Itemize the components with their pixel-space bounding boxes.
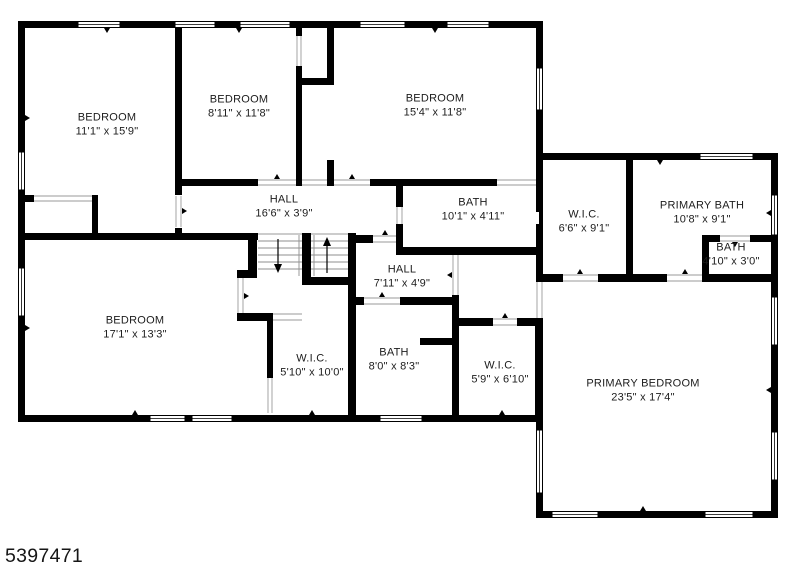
room-label-primary-bath: PRIMARY BATH 10'8" x 9'1" — [660, 200, 744, 227]
room-name: PRIMARY BATH — [660, 200, 744, 214]
room-dims: 16'6" x 3'9" — [255, 207, 312, 221]
room-name: BATH — [442, 197, 505, 211]
room-label-bath-hall: BATH 10'1" x 4'11" — [442, 197, 505, 224]
room-name: BEDROOM — [404, 93, 467, 107]
room-label-bedroom-4: BEDROOM 17'1" x 13'3" — [103, 315, 167, 342]
room-name: BEDROOM — [208, 94, 270, 108]
room-name: W.I.C. — [280, 353, 344, 367]
room-label-bath-lower: BATH 8'0" x 8'3" — [369, 347, 420, 374]
room-label-bedroom-2: BEDROOM 8'11" x 11'8" — [208, 94, 270, 121]
room-label-bath-small: BATH 4'10" x 3'0" — [702, 242, 759, 269]
room-dims: 8'0" x 8'3" — [369, 360, 420, 374]
room-label-wic-primary: W.I.C. 6'6" x 9'1" — [559, 209, 610, 236]
room-dims: 5'9" x 6'10" — [471, 373, 528, 387]
floorplan-page: BEDROOM 11'1" x 15'9" BEDROOM 8'11" x 11… — [0, 0, 800, 565]
room-label-hall-small: HALL 7'11" x 4'9" — [374, 264, 430, 291]
room-dims: 11'1" x 15'9" — [76, 125, 139, 139]
room-name: HALL — [255, 194, 312, 208]
room-name: W.I.C. — [471, 360, 528, 374]
room-name: PRIMARY BEDROOM — [586, 378, 699, 392]
room-dims: 23'5" x 17'4" — [586, 391, 699, 405]
room-dims: 10'8" x 9'1" — [660, 213, 744, 227]
room-dims: 8'11" x 11'8" — [208, 107, 270, 121]
room-dims: 7'11" x 4'9" — [374, 277, 430, 291]
room-dims: 6'6" x 9'1" — [559, 222, 610, 236]
listing-id-number: 5397471 — [5, 545, 83, 565]
room-label-bedroom-3: BEDROOM 15'4" x 11'8" — [404, 93, 467, 120]
room-dims: 5'10" x 10'0" — [280, 366, 344, 380]
stairs-down-arrow — [274, 239, 282, 273]
room-label-primary-bedroom: PRIMARY BEDROOM 23'5" x 17'4" — [586, 378, 699, 405]
room-dims: 17'1" x 13'3" — [103, 328, 167, 342]
room-name: BEDROOM — [76, 112, 139, 126]
room-label-hall-main: HALL 16'6" x 3'9" — [255, 194, 312, 221]
room-dims: 15'4" x 11'8" — [404, 106, 467, 120]
room-name: BATH — [702, 242, 759, 256]
room-label-wic-small: W.I.C. 5'9" x 6'10" — [471, 360, 528, 387]
room-label-bedroom-1: BEDROOM 11'1" x 15'9" — [76, 112, 139, 139]
room-name: W.I.C. — [559, 209, 610, 223]
room-dims: 4'10" x 3'0" — [702, 255, 759, 269]
room-name: BEDROOM — [103, 315, 167, 329]
room-label-wic-bedroom4: W.I.C. 5'10" x 10'0" — [280, 353, 344, 380]
room-dims: 10'1" x 4'11" — [442, 210, 505, 224]
room-name: HALL — [374, 264, 430, 278]
room-name: BATH — [369, 347, 420, 361]
